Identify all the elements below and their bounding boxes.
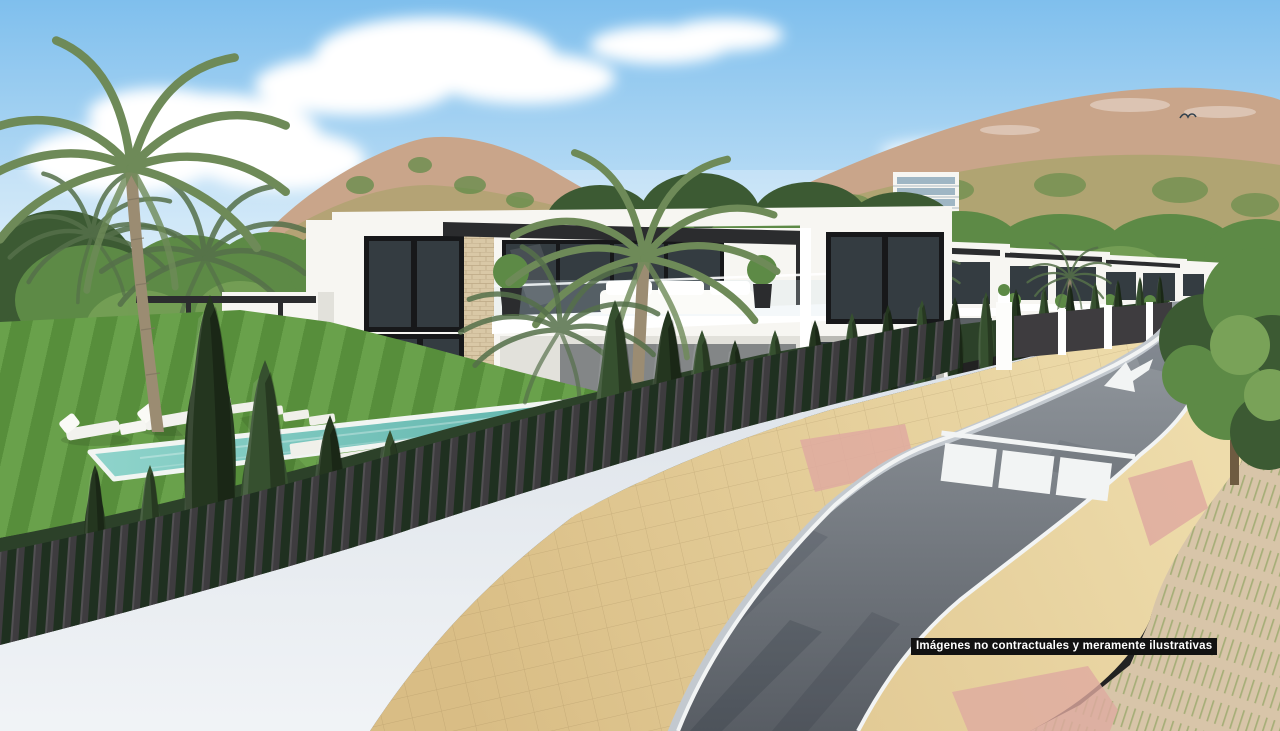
- gate-pillar: [996, 284, 1012, 370]
- disclaimer-badge: Imágenes no contractuales y meramente il…: [911, 638, 1217, 655]
- disclaimer-text: Imágenes no contractuales y meramente il…: [916, 640, 1212, 652]
- scene-canvas: [0, 0, 1280, 731]
- architectural-render: Imágenes no contractuales y meramente il…: [0, 0, 1280, 731]
